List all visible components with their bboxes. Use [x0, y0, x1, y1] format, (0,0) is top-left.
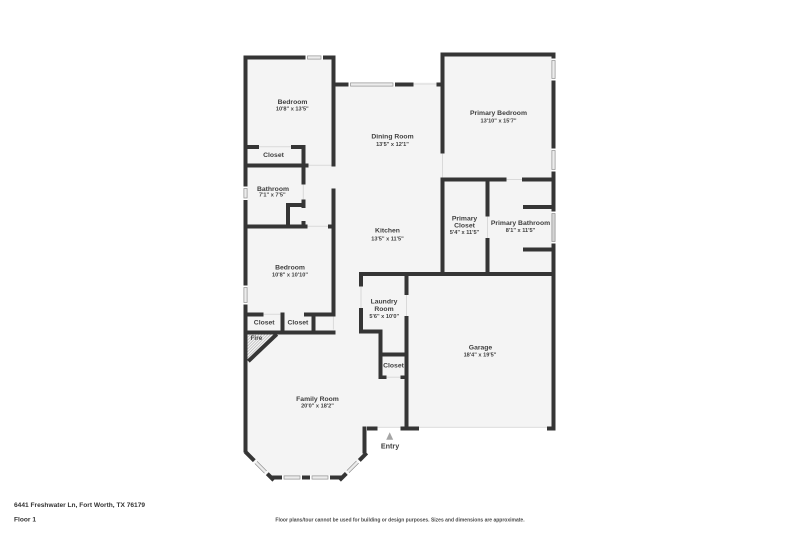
svg-text:13'5" x 12'1": 13'5" x 12'1": [376, 142, 409, 148]
svg-text:Room: Room: [374, 306, 393, 313]
svg-text:Floor 1: Floor 1: [14, 516, 36, 523]
svg-text:Floor plans/tour cannot be use: Floor plans/tour cannot be used for buil…: [275, 517, 525, 523]
svg-text:Laundry: Laundry: [371, 299, 398, 306]
svg-text:Family Room: Family Room: [296, 396, 339, 403]
svg-text:Closet: Closet: [454, 223, 476, 230]
svg-text:Primary Bathroom: Primary Bathroom: [491, 220, 550, 227]
svg-text:5'6" x 10'0": 5'6" x 10'0": [369, 314, 399, 320]
svg-text:Closet: Closet: [383, 363, 405, 370]
svg-text:Garage: Garage: [469, 345, 493, 352]
svg-text:6441 Freshwater Ln, Fort Worth: 6441 Freshwater Ln, Fort Worth, TX 76179: [14, 502, 145, 509]
svg-text:13'10" x 15'7": 13'10" x 15'7": [481, 119, 517, 125]
svg-text:18'4" x 19'5": 18'4" x 19'5": [464, 352, 497, 358]
svg-text:8'1" x 11'5": 8'1" x 11'5": [506, 228, 536, 234]
svg-text:13'5" x 11'5": 13'5" x 11'5": [371, 237, 404, 243]
svg-text:Kitchen: Kitchen: [375, 228, 400, 235]
svg-text:Closet: Closet: [263, 152, 285, 159]
svg-text:Closet: Closet: [288, 320, 310, 327]
svg-text:10'8" x 10'10": 10'8" x 10'10": [272, 273, 308, 279]
svg-text:Primary Bedroom: Primary Bedroom: [470, 110, 527, 117]
svg-text:20'0" x 18'2": 20'0" x 18'2": [301, 404, 334, 410]
svg-text:Dining Room: Dining Room: [371, 134, 413, 141]
svg-text:Entry: Entry: [381, 441, 399, 450]
svg-text:7'1" x 7'5": 7'1" x 7'5": [259, 193, 286, 199]
svg-text:Bedroom: Bedroom: [275, 265, 305, 272]
svg-text:Fire: Fire: [251, 335, 263, 342]
svg-text:Primary: Primary: [452, 216, 478, 223]
svg-text:Closet: Closet: [254, 320, 276, 327]
svg-text:5'4" x 11'5": 5'4" x 11'5": [450, 230, 480, 236]
svg-text:Bedroom: Bedroom: [278, 99, 308, 106]
svg-text:10'8" x 13'5": 10'8" x 13'5": [276, 107, 309, 113]
